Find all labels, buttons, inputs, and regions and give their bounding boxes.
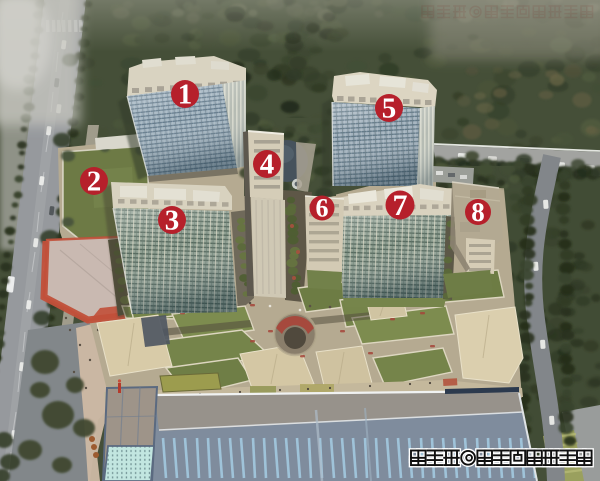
svg-text:3: 3 — [165, 205, 180, 237]
svg-text:4: 4 — [260, 149, 275, 181]
svg-text:1: 1 — [178, 79, 193, 111]
svg-text:8: 8 — [471, 197, 485, 227]
svg-text:2: 2 — [87, 166, 102, 198]
svg-text:7: 7 — [393, 189, 408, 222]
svg-text:6: 6 — [316, 194, 329, 223]
svg-text:5: 5 — [382, 93, 397, 125]
